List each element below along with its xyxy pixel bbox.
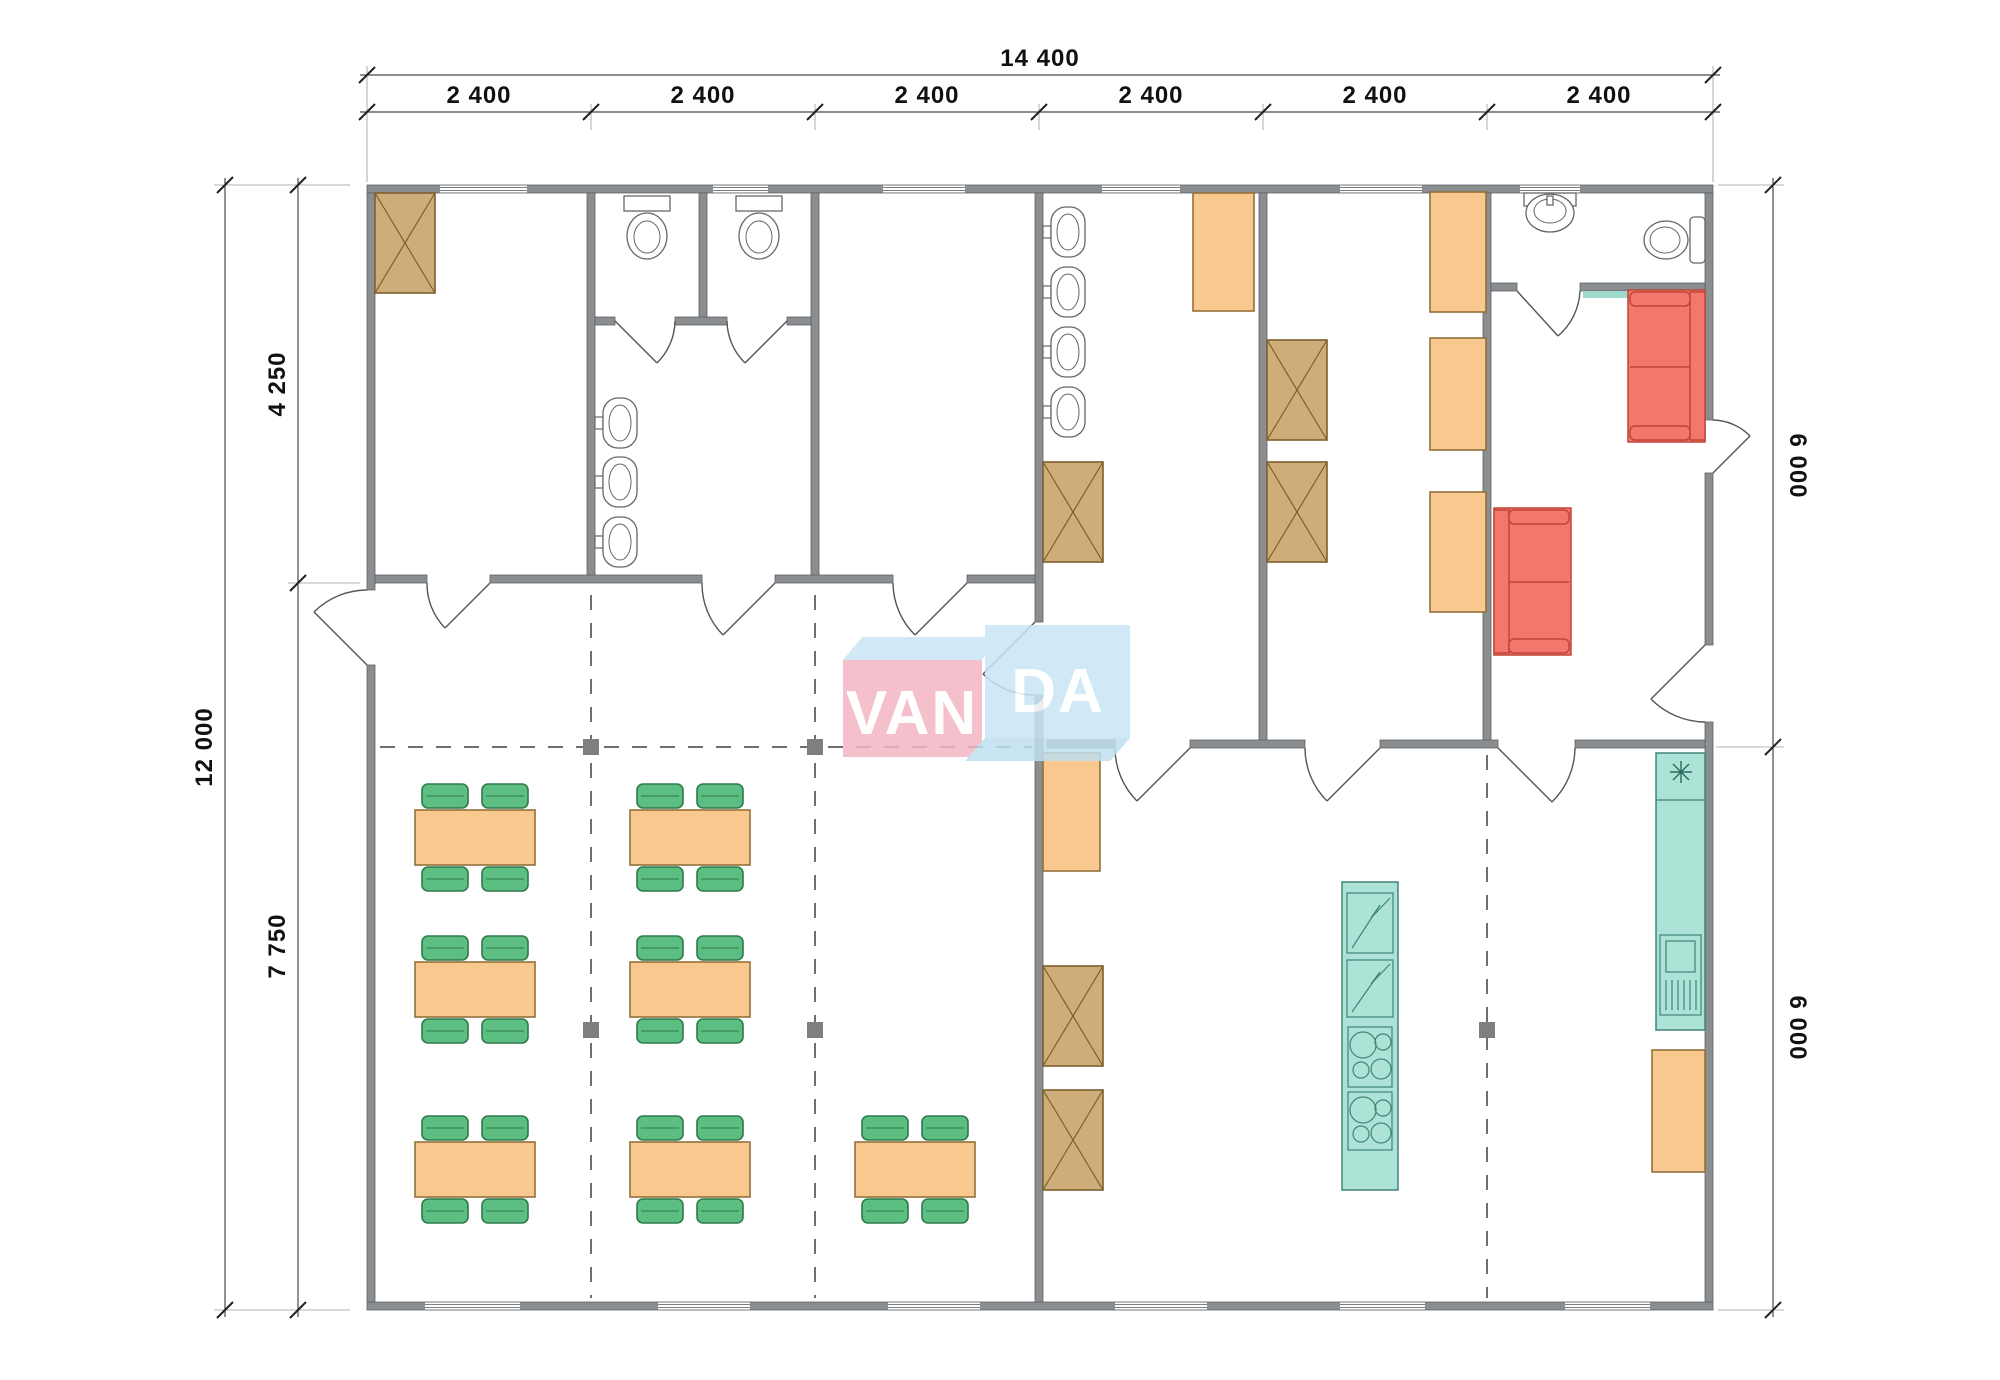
floor-plan-page: 14 400 2 400 2 400 2 400 2 400 2 400 2 4… [0, 0, 2000, 1380]
wall-interior [811, 193, 819, 575]
dim-label-bay-3: 2 400 [894, 82, 959, 109]
dining-table [630, 1142, 750, 1197]
door-entrance [1651, 645, 1705, 722]
door [1498, 748, 1575, 802]
sofa [1628, 290, 1705, 442]
window [658, 1303, 750, 1310]
door-exterior [1713, 420, 1750, 473]
door [1517, 291, 1580, 336]
floor-plan-drawing: 14 400 2 400 2 400 2 400 2 400 2 400 2 4… [0, 0, 2000, 1380]
chair [922, 1199, 968, 1223]
chair [697, 936, 743, 960]
chair [482, 1199, 528, 1223]
window [1102, 186, 1180, 193]
wall-stall [787, 317, 811, 325]
wall-exterior-top [367, 185, 1713, 193]
dining-area [415, 784, 975, 1223]
wall-exterior-right [1705, 193, 1713, 420]
sink-icon [1043, 387, 1085, 437]
chair [482, 1019, 528, 1043]
window [1340, 186, 1422, 193]
wall-stall [595, 317, 615, 325]
kitchen-sink-icon [1670, 761, 1692, 783]
wall-hall-divider [1035, 193, 1043, 622]
door [615, 321, 675, 363]
chair [422, 1199, 468, 1223]
wall-interior [1259, 193, 1267, 740]
locker [1043, 753, 1100, 871]
sink-icon [1043, 207, 1085, 257]
locker [1430, 338, 1486, 450]
storage-box [1043, 966, 1103, 1066]
logo-text-right: DA [1011, 657, 1105, 726]
logo-text-left: VAN [846, 679, 978, 748]
dining-table [855, 1142, 975, 1197]
sofa [1494, 508, 1571, 655]
toilet-icon [736, 196, 782, 259]
door [727, 321, 787, 363]
dining-table [415, 962, 535, 1017]
chair [482, 936, 528, 960]
chair [697, 1116, 743, 1140]
chair [637, 867, 683, 891]
wall-interior [1491, 283, 1517, 291]
chair [637, 1199, 683, 1223]
chair [422, 936, 468, 960]
sink-icon [595, 517, 637, 567]
sink-icon [1043, 327, 1085, 377]
window [883, 186, 965, 193]
dim-label-right-upper: 6 000 [1784, 433, 1811, 498]
wall-hall-divider [1035, 695, 1043, 1302]
grid-node [583, 1022, 599, 1038]
door-exterior [314, 590, 367, 665]
window [1115, 1303, 1207, 1310]
chair [697, 867, 743, 891]
kitchen-counter [1656, 753, 1705, 1030]
chair [422, 1019, 468, 1043]
chair [422, 867, 468, 891]
dim-label-total-width: 14 400 [1000, 45, 1079, 72]
door [702, 583, 775, 635]
wall-exterior-right [1705, 722, 1713, 1302]
chair [482, 1116, 528, 1140]
chair [637, 1019, 683, 1043]
dim-label-bay-6: 2 400 [1566, 82, 1631, 109]
chair [422, 1116, 468, 1140]
locker [1193, 193, 1254, 311]
sink-icon [1043, 267, 1085, 317]
dimension-top-bays: 2 400 2 400 2 400 2 400 2 400 2 400 [359, 82, 1721, 120]
wall-exterior-bottom [367, 1302, 1713, 1310]
chair [482, 867, 528, 891]
window [713, 186, 768, 193]
door [427, 583, 490, 628]
window [1520, 186, 1580, 193]
window [888, 1303, 980, 1310]
chair [862, 1116, 908, 1140]
window [440, 186, 527, 193]
chair [637, 784, 683, 808]
dimension-right-split: 6 000 6 000 [1765, 177, 1811, 1318]
chair [697, 1199, 743, 1223]
door [1305, 748, 1380, 801]
wall-interior [1575, 740, 1705, 748]
grid-node [583, 739, 599, 755]
dim-label-bay-4: 2 400 [1118, 82, 1183, 109]
grid-node [1479, 1022, 1495, 1038]
locker [1430, 492, 1486, 612]
window [425, 1303, 520, 1310]
dining-table [630, 962, 750, 1017]
wall-interior [1380, 740, 1498, 748]
dim-label-left-upper: 4 250 [264, 351, 291, 416]
locker [1652, 1050, 1705, 1172]
wall-interior [775, 575, 893, 583]
toilet-icon [624, 196, 670, 259]
storage-box [1043, 1090, 1103, 1190]
vanda-watermark: VAN DA [843, 625, 1130, 761]
dimension-left-split: 4 250 7 750 [264, 177, 306, 1318]
chair [637, 936, 683, 960]
window [1340, 1303, 1425, 1310]
door [1115, 748, 1190, 801]
dining-table [415, 810, 535, 865]
dim-label-bay-5: 2 400 [1342, 82, 1407, 109]
sink-icon [595, 398, 637, 448]
dim-label-left-lower: 7 750 [264, 913, 291, 978]
storage-box [1043, 462, 1103, 562]
chair [862, 1199, 908, 1223]
chair [482, 784, 528, 808]
window [1565, 1303, 1650, 1310]
chair [697, 784, 743, 808]
dim-label-right-lower: 6 000 [1784, 995, 1811, 1060]
wall-interior [587, 193, 595, 575]
storage-box [1267, 462, 1327, 562]
storage-box [1267, 340, 1327, 440]
toilet-icon [1644, 217, 1705, 263]
sink-icon [1524, 193, 1576, 232]
dimension-top-total: 14 400 [359, 45, 1721, 83]
chair [422, 784, 468, 808]
grid-node [807, 739, 823, 755]
wardrobe-box [375, 193, 435, 293]
dining-table [630, 810, 750, 865]
wall-interior [1190, 740, 1305, 748]
chair [637, 1116, 683, 1140]
dimension-left-total: 12 000 [191, 177, 233, 1318]
locker [1430, 192, 1486, 312]
wall-exterior-right [1705, 473, 1713, 645]
wall-exterior-left [367, 193, 375, 590]
kitchen-island [1342, 882, 1398, 1190]
wall-interior [375, 575, 427, 583]
logo-bottom-slab [965, 738, 1130, 761]
wall-interior [967, 575, 1035, 583]
dim-label-total-height: 12 000 [191, 707, 218, 786]
chair [697, 1019, 743, 1043]
door [893, 583, 967, 635]
wall-exterior-left [367, 665, 375, 1302]
wall-interior [490, 575, 702, 583]
dim-label-bay-1: 2 400 [446, 82, 511, 109]
wall-stall [675, 317, 727, 325]
logo-top-slab [843, 637, 1000, 660]
wall-stall-partition [699, 193, 707, 317]
chair [922, 1116, 968, 1140]
sink-icon [595, 457, 637, 507]
dim-label-bay-2: 2 400 [670, 82, 735, 109]
dining-table [415, 1142, 535, 1197]
grid-node [807, 1022, 823, 1038]
